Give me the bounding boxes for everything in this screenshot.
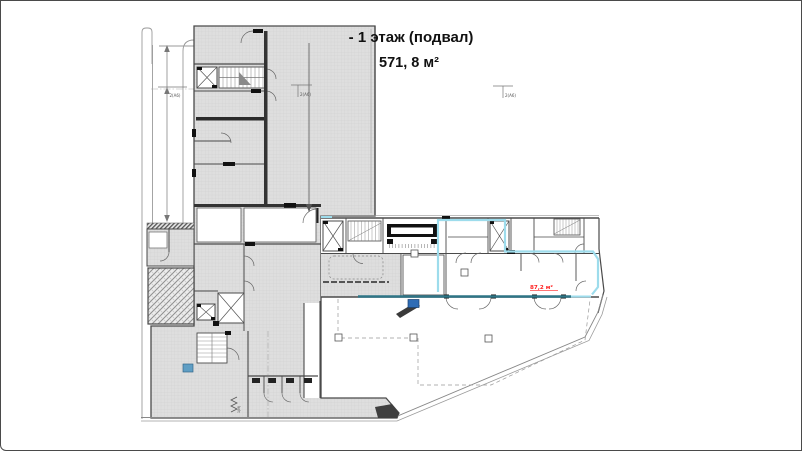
column bbox=[410, 334, 417, 341]
slide-page: 2(А6) bbox=[0, 0, 802, 451]
column bbox=[411, 250, 418, 257]
column bbox=[461, 269, 468, 276]
floor-plan: 2(А6) bbox=[1, 1, 801, 450]
dashed-outline bbox=[338, 299, 590, 385]
door-arc bbox=[446, 297, 561, 309]
hatch-strip bbox=[147, 223, 194, 229]
room bbox=[197, 208, 241, 242]
wall-fill bbox=[196, 117, 266, 121]
hatched-square bbox=[148, 268, 194, 324]
small-room bbox=[149, 232, 167, 248]
right-wing-gray-floor bbox=[321, 254, 401, 298]
plan-title: - 1 этаж (подвал) bbox=[349, 29, 474, 46]
wall-fill bbox=[253, 29, 263, 33]
staircase bbox=[197, 331, 231, 363]
door-label: 1(М) bbox=[237, 406, 241, 413]
staircase bbox=[348, 221, 381, 241]
axis-label-mid: 2(А6) bbox=[300, 92, 311, 97]
teal-marker bbox=[183, 364, 193, 372]
room bbox=[244, 208, 316, 242]
axis-label-left: 2(А6) bbox=[170, 93, 181, 98]
plan-area: 571, 8 м² bbox=[379, 55, 439, 71]
column bbox=[485, 335, 492, 342]
blue-marker bbox=[408, 300, 419, 308]
area-label: 87,2 м² bbox=[530, 284, 553, 291]
right-wing bbox=[321, 216, 604, 313]
passage bbox=[304, 303, 320, 398]
column bbox=[335, 334, 342, 341]
axis-label-right: 2(А6) bbox=[505, 93, 516, 98]
corridor-wall bbox=[264, 31, 268, 206]
staircase bbox=[219, 67, 266, 88]
